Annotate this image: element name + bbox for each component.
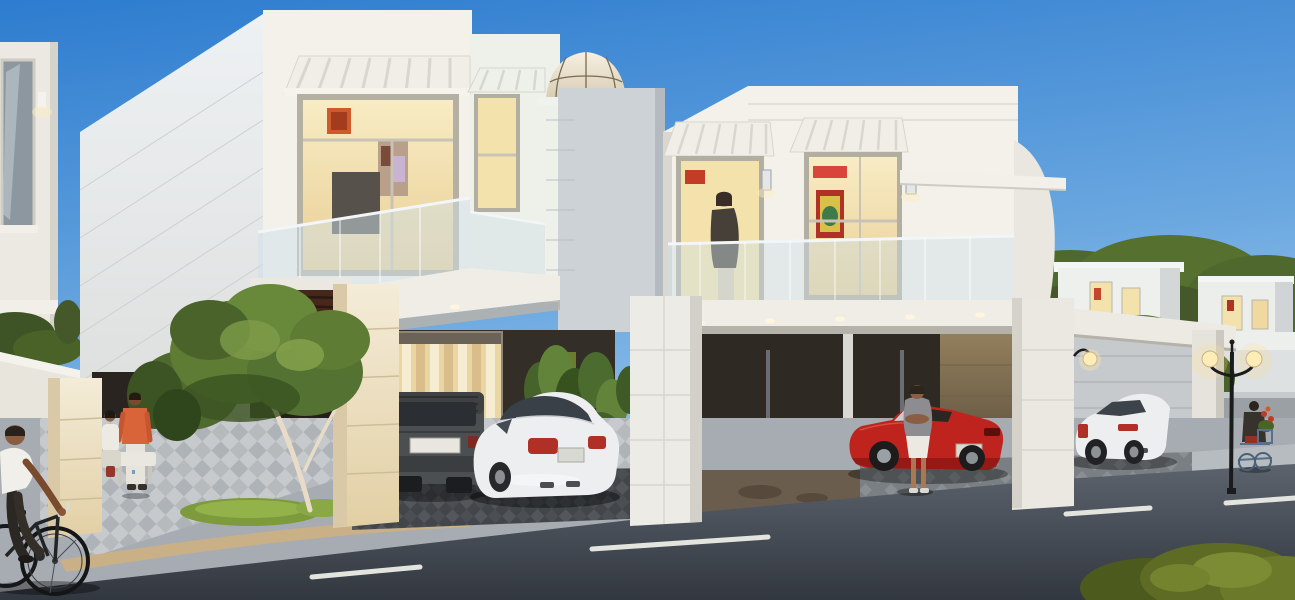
wall-sconce — [762, 170, 771, 190]
wall-sconce — [38, 92, 46, 108]
villa-window — [1252, 300, 1268, 329]
lamp-globe — [1246, 351, 1262, 367]
window-glass — [478, 98, 516, 208]
license-plate — [558, 448, 584, 462]
lamp-globe — [1202, 351, 1218, 367]
architectural-rendering-scene — [0, 0, 1295, 600]
taillight — [1078, 424, 1088, 438]
balcony-railing — [668, 236, 1014, 302]
balcony-slab — [660, 300, 1016, 328]
taillight — [528, 438, 558, 454]
license-plate — [410, 438, 460, 453]
